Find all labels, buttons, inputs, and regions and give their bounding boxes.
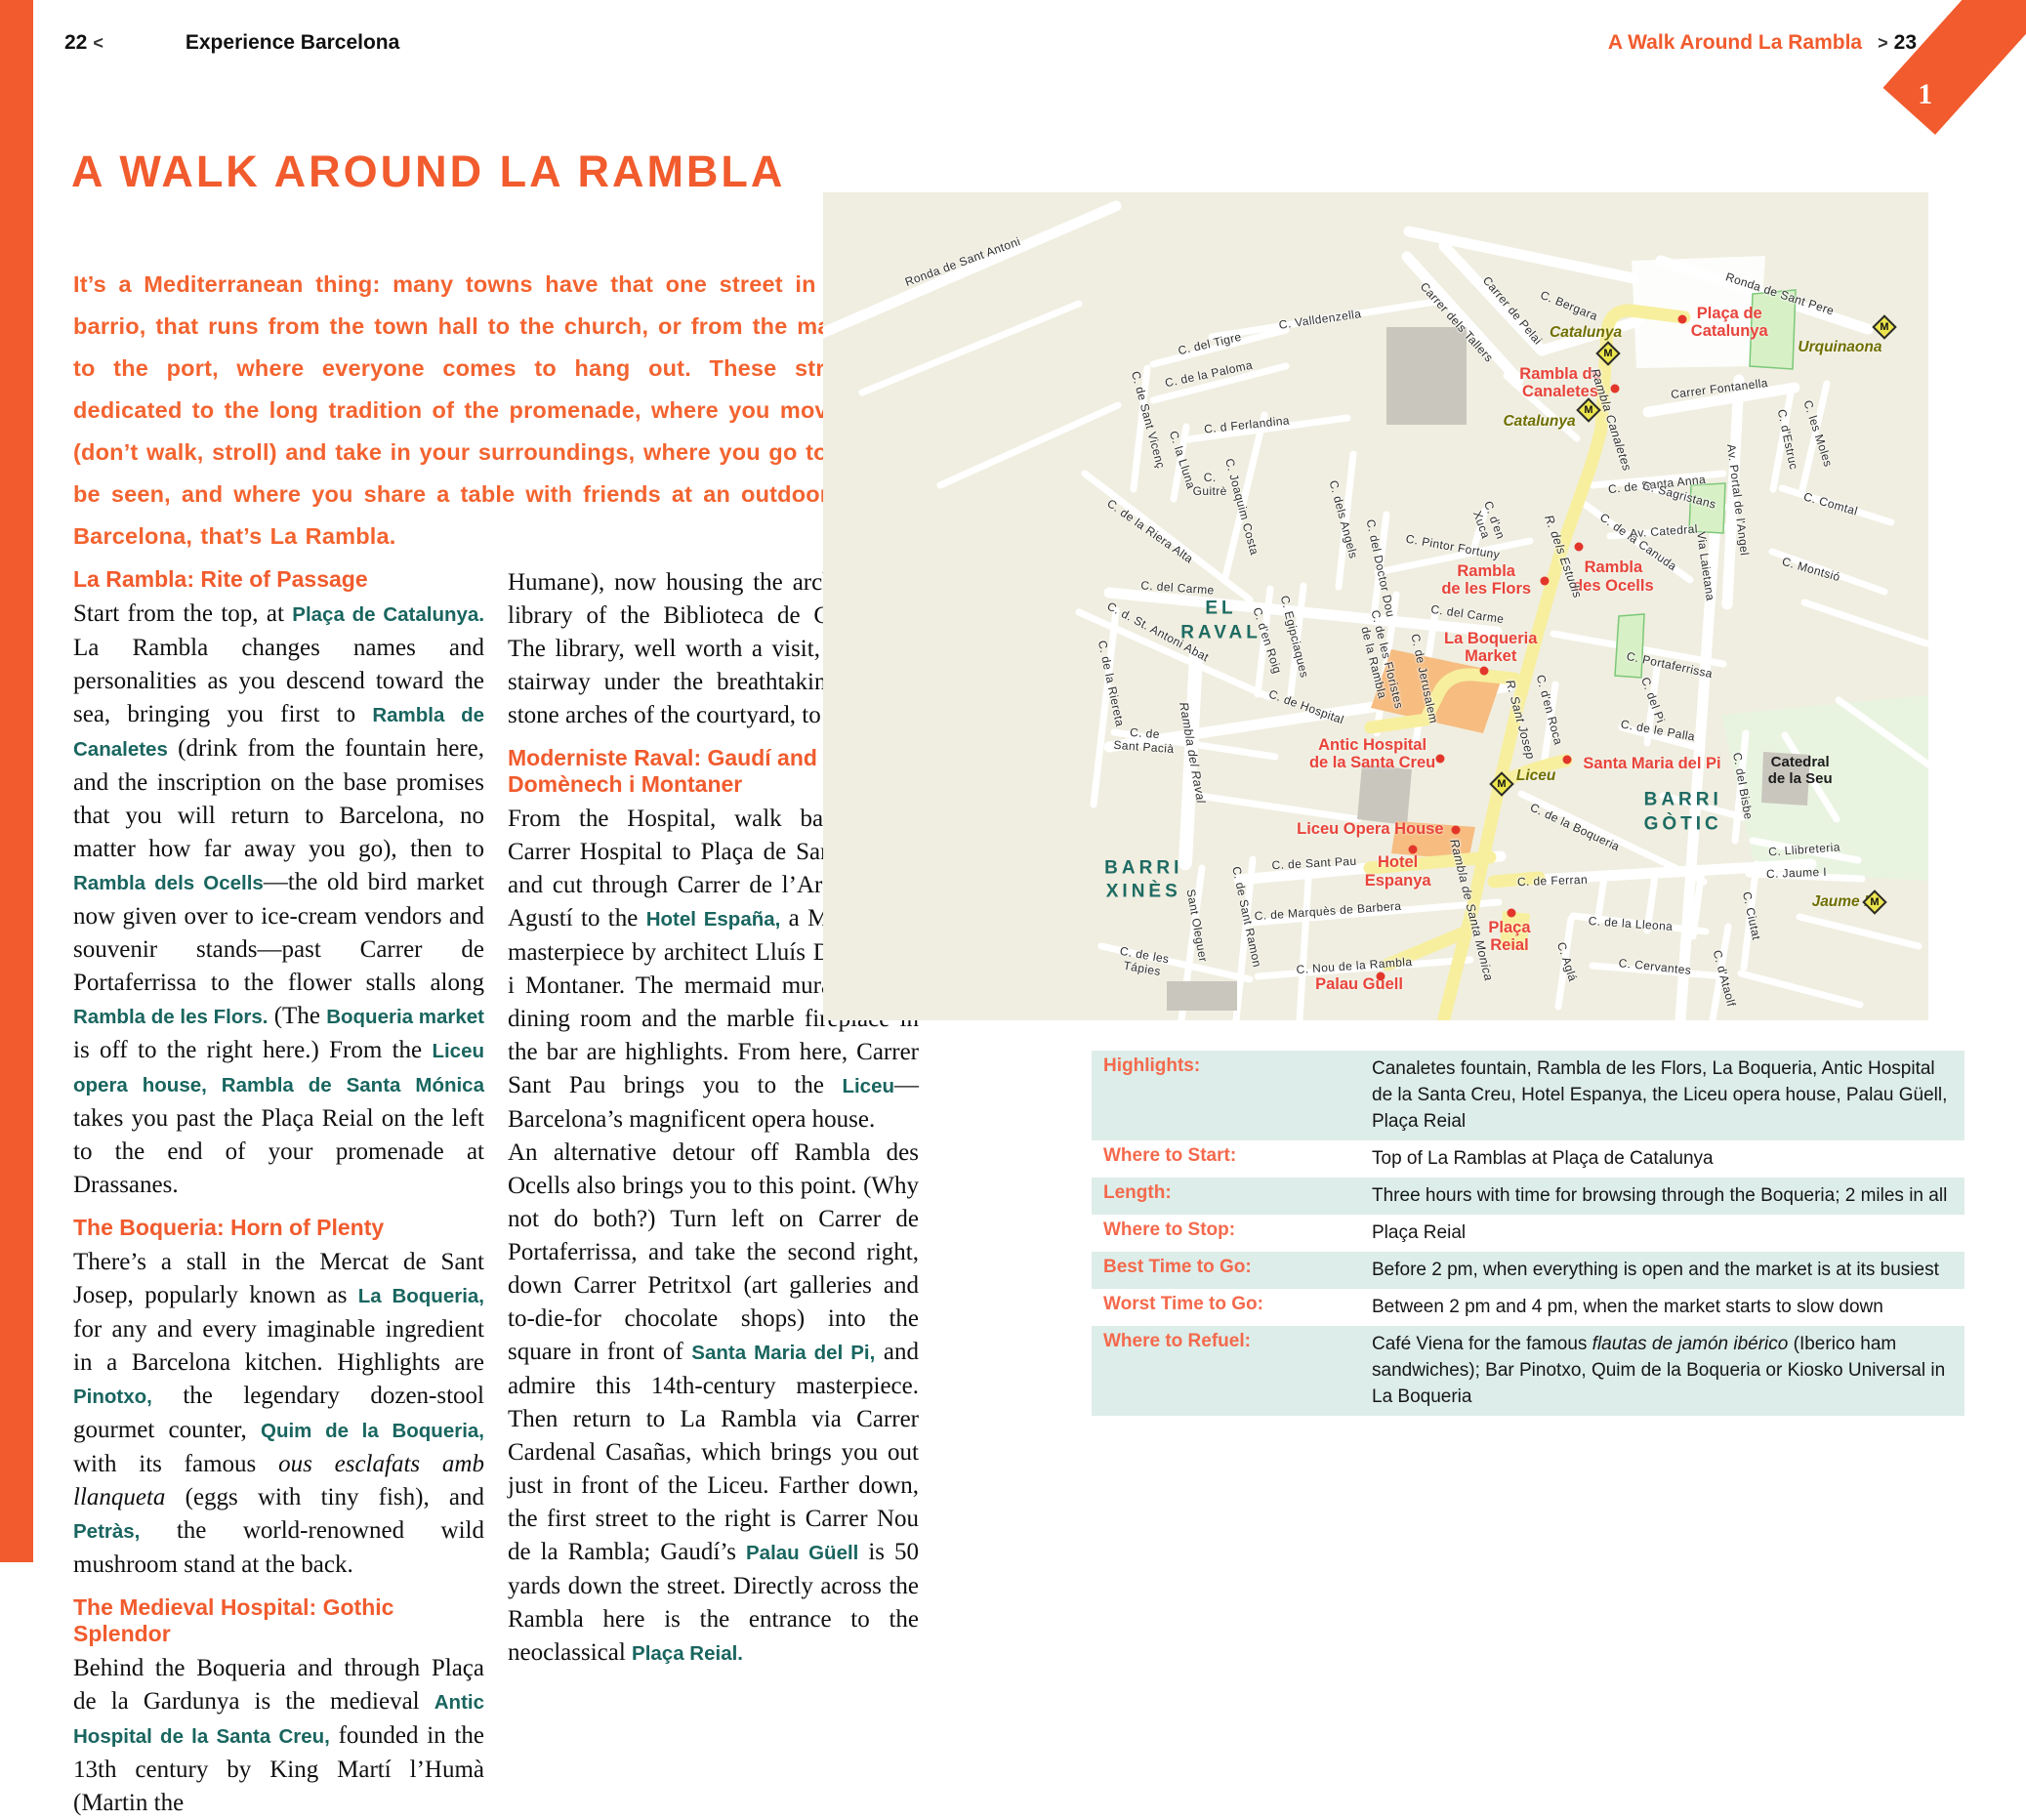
place-name: Santa Maria del Pi, [691, 1342, 875, 1364]
map-street-label: Av. Catedral [1630, 521, 1699, 540]
info-row: Where to Start:Top of La Ramblas at Plaç… [1092, 1140, 1964, 1178]
map-street-label: Rambla del Raval [1177, 701, 1208, 805]
info-row: Where to Refuel:Café Viena for the famou… [1092, 1326, 1964, 1416]
map-street-label: C. del Pi [1638, 675, 1668, 724]
map-street-label: C. del Bisbe [1730, 752, 1756, 821]
map-poi-label: Antic Hospital de la Santa Creu [1309, 736, 1435, 771]
info-row-value: Between 2 pm and 4 pm, when the market s… [1372, 1294, 1953, 1320]
map-poi-label: Hotel Espanya [1365, 853, 1431, 889]
poi-dot-icon [1575, 542, 1584, 551]
map-street-label: C. d Ferlandina [1203, 414, 1290, 436]
map-street-label: C. Montsió [1781, 555, 1842, 584]
map-street-label: C. Jaume I [1766, 865, 1827, 881]
place-name: Petràs, [73, 1520, 140, 1543]
info-row-value: Plaça Reial [1372, 1220, 1953, 1246]
place-name: Liceu [842, 1075, 894, 1097]
page-title: A WALK AROUND LA RAMBLA [71, 146, 785, 197]
article-paragraph: Behind the Boqueria and through Plaça de… [73, 1652, 484, 1820]
article-heading: The Medieval Hospital: Gothic Splendor [73, 1594, 484, 1647]
right-running-header: A Walk Around La Rambla > 23 [1608, 31, 1917, 55]
map-metro-label: Catalunya [1550, 324, 1622, 342]
map-poi-label: Rambla des Ocells [1573, 558, 1654, 594]
spine-color-bar [0, 0, 33, 1562]
map-district-label: BARRI GÒTIC [1644, 788, 1722, 836]
map-poi-label: Santa Maria del Pi [1583, 755, 1720, 772]
left-running-header: 22 < Experience Barcelona [64, 31, 399, 55]
map-street-label: Ronda de Sant Antoni [903, 234, 1022, 289]
map-metro-label: Catalunya [1503, 413, 1575, 431]
place-name: Rambla de Canaletes [73, 704, 484, 761]
map-building-label: Catedral de la Seu [1768, 754, 1833, 788]
info-row-value: Before 2 pm, when everything is open and… [1372, 1257, 1953, 1283]
map-poi-label: Palau Güell [1315, 975, 1403, 993]
map-street-label: C. Cervantes [1618, 956, 1692, 977]
article-column-1: La Rambla: Rite of PassageStart from the… [73, 566, 484, 1820]
map-street-label: Carrer Fontanella [1670, 376, 1768, 401]
map-street-label: C. Guitrè [1193, 471, 1227, 498]
map-poi-label: Plaça Reial [1488, 919, 1530, 954]
book-spread: 22 < Experience Barcelona A Walk Around … [0, 0, 2026, 1562]
map-street-label: C. de Jerusalem [1408, 633, 1440, 724]
poi-dot-icon [1376, 972, 1385, 981]
info-row-label: Where to Stop: [1103, 1220, 1372, 1246]
map-street-label: C. de la Lleona [1589, 914, 1674, 933]
map-street-label: C. de les Floristes de la Rambla [1354, 608, 1405, 713]
map-street-label: C. les Moles [1800, 398, 1835, 469]
map-street-label: C. Portaferrissa [1626, 649, 1715, 681]
info-row: Where to Stop:Plaça Reial [1092, 1215, 1964, 1252]
right-chevron-icon: > [1878, 33, 1888, 54]
map-street-label: Carrer de Pelai [1480, 274, 1545, 348]
map-poi-label: Plaça de Catalunya [1691, 305, 1768, 340]
article-paragraph: There’s a stall in the Mercat de Sant Jo… [73, 1246, 484, 1582]
map-street-label: C. Comtal [1802, 489, 1860, 517]
map-district-label: BARRI XINÈS [1104, 856, 1182, 904]
poi-dot-icon [1610, 384, 1619, 393]
place-name: Hotel España, [646, 908, 781, 931]
place-name: Rambla dels Ocells [73, 872, 264, 894]
info-row: Highlights:Canaletes fountain, Rambla de… [1092, 1051, 1964, 1140]
info-row-label: Worst Time to Go: [1103, 1294, 1372, 1320]
map-street-label: C. d'en Roca [1533, 674, 1565, 747]
map-street-label: C. de Sant Vicenç [1129, 370, 1168, 471]
info-row: Worst Time to Go:Between 2 pm and 4 pm, … [1092, 1289, 1964, 1326]
map-poi-label: Rambla de les Flors [1441, 562, 1531, 598]
place-name: Liceu opera house, Rambla de Santa Mónic… [73, 1040, 484, 1096]
map-poi-label: La Boqueria Market [1444, 629, 1537, 664]
map-street-label: C. de Sant Pacià [1113, 724, 1176, 756]
poi-dot-icon [1451, 825, 1460, 834]
info-row-label: Highlights: [1103, 1055, 1372, 1135]
emphasis-text: ous esclafats amb llanqueta [73, 1451, 484, 1510]
map-street-label: C. de la Boqueria [1528, 801, 1622, 854]
right-page-number: 23 [1894, 31, 1917, 55]
map-street-label: C. Ciutat [1740, 890, 1763, 941]
map-street-label: C. d'en Xuca [1468, 500, 1508, 547]
map-street-label: C. Nou de la Rambla [1297, 955, 1414, 976]
intro-paragraph: It’s a Mediterranean thing: many towns h… [73, 264, 925, 558]
article-paragraph: An alternative detour off Rambla des Oce… [508, 1137, 919, 1671]
place-name: Quim de la Boqueria, [261, 1420, 484, 1442]
map-street-label: R. dels Estudis [1543, 514, 1586, 600]
place-name: Plaça de Catalunya. [292, 603, 484, 626]
map-street-label: C. de la Riereta [1096, 639, 1127, 727]
walk-route-map: Plaça de CatalunyaRambla de CanaletesRam… [823, 192, 1928, 1020]
metro-icon: M [1595, 342, 1620, 366]
map-street-label: Sant Oleguer [1183, 889, 1210, 964]
poi-dot-icon [1435, 755, 1444, 764]
place-name: Rambla de les Flors. [73, 1006, 268, 1028]
map-street-label: C. Valldenzella [1278, 307, 1362, 332]
map-labels-layer: Plaça de CatalunyaRambla de CanaletesRam… [823, 192, 1928, 1020]
map-street-label: Rambla Canaletes [1589, 367, 1634, 473]
article-heading: La Rambla: Rite of Passage [73, 566, 484, 593]
poi-dot-icon [1479, 667, 1488, 676]
map-street-label: C. del Carme [1140, 579, 1215, 598]
poi-dot-icon [1562, 755, 1571, 764]
map-street-label: Av. Portal de l'Angel [1724, 443, 1752, 557]
article-paragraph: Start from the top, at Plaça de Cataluny… [73, 598, 484, 1202]
info-row: Best Time to Go:Before 2 pm, when everyt… [1092, 1252, 1964, 1289]
info-row-value: Top of La Ramblas at Plaça de Catalunya [1372, 1145, 1953, 1172]
map-street-label: C. d'Ataolf [1710, 948, 1738, 1008]
info-row-label: Length: [1103, 1182, 1372, 1209]
map-street-label: Via Laietana [1695, 531, 1718, 602]
chapter-tab: 1 [1882, 0, 2026, 135]
map-street-label: C. d'Estruc [1775, 408, 1801, 471]
info-row-label: Best Time to Go: [1103, 1257, 1372, 1283]
map-street-label: Rambla de Santa Monica [1448, 838, 1497, 982]
map-street-label: C. de Ferran [1517, 872, 1589, 889]
walk-title: A Walk Around La Rambla [1608, 31, 1862, 55]
map-street-label: C. dels Angels [1327, 478, 1361, 559]
map-street-label: C. del Carme [1430, 602, 1506, 626]
place-name: Plaça Reial. [632, 1642, 743, 1665]
left-page-number: 22 [64, 31, 87, 55]
map-street-label: Carrer dels Tallers [1417, 280, 1495, 365]
walk-info-table: Highlights:Canaletes fountain, Rambla de… [1092, 1051, 1964, 1416]
map-street-label: C. de les Tápies [1117, 944, 1171, 979]
article-columns: La Rambla: Rite of PassageStart from the… [73, 566, 919, 1820]
map-street-label: C. Aglá [1554, 940, 1580, 983]
map-street-label: C. de Sant Pau [1271, 854, 1357, 873]
left-chevron-icon: < [93, 33, 103, 54]
metro-letter: M [1878, 320, 1891, 334]
metro-letter: M [1868, 895, 1881, 909]
map-street-label: C. de Hospital [1266, 686, 1345, 726]
emphasis-text: flautas de jamón ibérico [1592, 1334, 1789, 1354]
map-street-label: C. del Doctor Dou [1363, 518, 1397, 619]
metro-letter: M [1601, 347, 1615, 360]
poi-dot-icon [1409, 846, 1418, 854]
map-metro-label: Jaume I [1812, 893, 1869, 911]
map-street-label: C. de la Riera Alta [1104, 496, 1195, 565]
info-row-value: Three hours with time for browsing throu… [1372, 1182, 1953, 1209]
metro-letter: M [1495, 777, 1509, 791]
poi-dot-icon [1677, 314, 1686, 323]
map-street-label: C. de Marquès de Barbera [1255, 899, 1403, 924]
poi-dot-icon [1508, 908, 1516, 917]
metro-icon: M [1872, 314, 1896, 339]
metro-letter: M [1582, 403, 1595, 417]
place-name: Boqueria market [326, 1006, 484, 1028]
map-street-label: C. Bergara [1539, 288, 1600, 323]
chapter-number: 1 [1918, 78, 1932, 111]
metro-icon: M [1489, 772, 1513, 797]
map-metro-label: Liceu [1516, 767, 1555, 785]
section-title: Experience Barcelona [186, 31, 399, 55]
info-row: Length:Three hours with time for browsin… [1092, 1178, 1964, 1215]
map-street-label: R. Sant Josep [1504, 679, 1538, 761]
map-district-label: EL RAVAL [1180, 598, 1261, 645]
map-poi-label: Liceu Opera House [1297, 820, 1443, 838]
info-row-value: Café Viena for the famous flautas de jam… [1372, 1331, 1953, 1410]
place-name: La Boqueria, [358, 1285, 484, 1307]
article-heading: The Boqueria: Horn of Plenty [73, 1215, 484, 1241]
map-street-label: C. de la Paloma [1164, 357, 1254, 390]
info-row-label: Where to Start: [1103, 1145, 1372, 1172]
map-street-label: C. del Tigre [1177, 330, 1243, 358]
place-name: Pinotxo, [73, 1386, 152, 1408]
poi-dot-icon [1541, 576, 1550, 585]
info-row-label: Where to Refuel: [1103, 1331, 1372, 1410]
place-name: Palau Güell [746, 1542, 858, 1564]
map-street-label: C. Joaquim Costa [1222, 457, 1261, 557]
map-street-label: C. Llibreteria [1768, 841, 1840, 859]
map-metro-label: Urquinaona [1798, 339, 1881, 356]
place-name: Antic Hospital de la Santa Creu, [73, 1691, 484, 1748]
info-row-value: Canaletes fountain, Rambla de les Flors,… [1372, 1055, 1953, 1135]
